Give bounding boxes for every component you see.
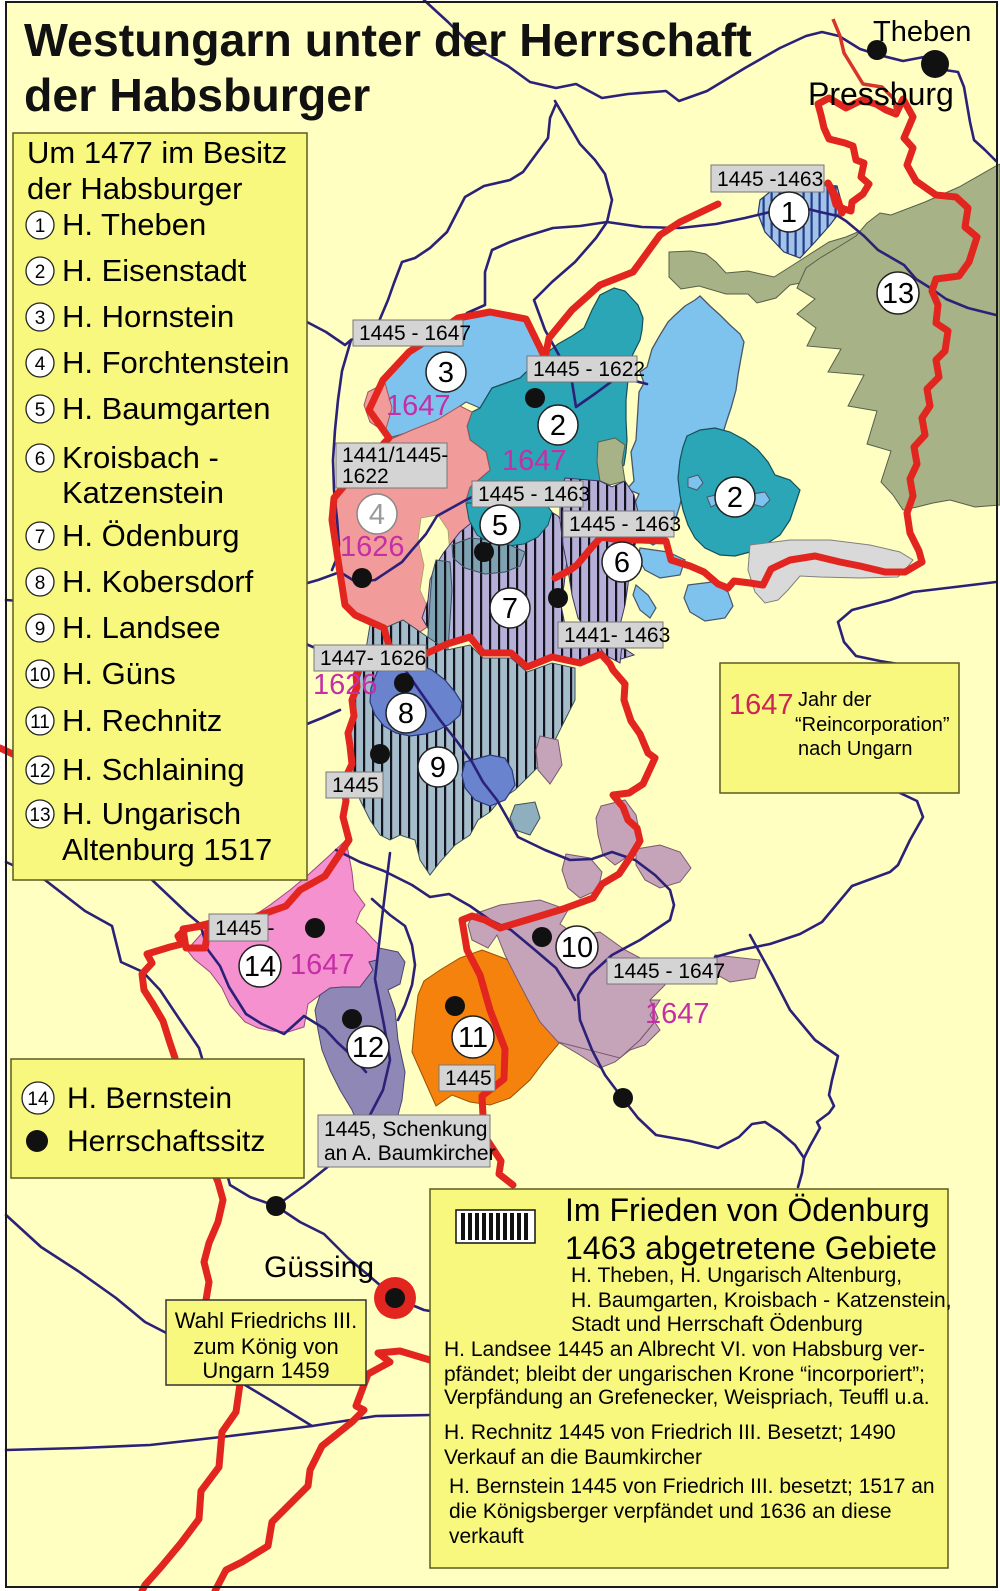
svg-text:12: 12 [352,1032,384,1064]
svg-text:Jahr der: Jahr der [798,689,872,711]
svg-text:1445 - 1463: 1445 - 1463 [569,513,681,536]
svg-text:1445 - 1647: 1445 - 1647 [613,960,725,983]
svg-text:H. Forchtenstein: H. Forchtenstein [62,345,289,380]
svg-text:11: 11 [458,1022,488,1054]
svg-text:1445 -1463: 1445 -1463 [717,168,823,191]
svg-text:Herrschaftssitz: Herrschaftssitz [67,1125,265,1158]
svg-text:8: 8 [398,698,414,730]
svg-text:die Königsberger verpfändet un: die Königsberger verpfändet und 1636 an … [449,1500,892,1523]
svg-text:Pressburg: Pressburg [808,76,954,112]
svg-text:2: 2 [35,262,46,283]
svg-text:1: 1 [781,197,797,229]
svg-text:1647: 1647 [645,998,710,1030]
svg-text:Stadt und Herrschaft Ödenburg: Stadt und Herrschaft Ödenburg [571,1313,863,1336]
svg-text:H. Theben: H. Theben [62,207,206,242]
svg-text:13: 13 [882,278,914,310]
svg-text:12: 12 [29,761,50,782]
svg-text:H. Schlaining: H. Schlaining [62,752,245,787]
svg-text:2: 2 [727,482,743,514]
svg-text:H. Hornstein: H. Hornstein [62,299,234,334]
svg-text:1626: 1626 [313,669,378,701]
svg-text:2: 2 [550,410,566,442]
svg-text:H. Rechnitz: H. Rechnitz [62,703,222,738]
svg-text:1445: 1445 [332,774,379,797]
svg-text:9: 9 [35,619,46,640]
svg-text:1445 - 1647: 1445 - 1647 [359,322,471,345]
svg-text:1447- 1626: 1447- 1626 [320,647,426,670]
svg-text:5: 5 [35,400,46,421]
svg-text:1647: 1647 [502,445,567,477]
svg-text:7: 7 [35,527,46,548]
svg-text:13: 13 [29,805,50,826]
svg-text:10: 10 [561,932,593,964]
svg-text:4: 4 [35,354,46,375]
svg-text:an A. Baumkircher: an A. Baumkircher [324,1142,496,1165]
svg-text:Altenburg 1517: Altenburg 1517 [62,832,272,867]
svg-text:1463 abgetretene Gebiete: 1463 abgetretene Gebiete [565,1230,937,1266]
svg-text:1647: 1647 [729,689,794,721]
svg-text:Verpfändung an Grefenecker, We: Verpfändung an Grefenecker, Weispriach, … [444,1386,930,1409]
svg-text:Katzenstein: Katzenstein [62,475,224,510]
svg-text:H. Ungarisch: H. Ungarisch [62,796,241,831]
svg-text:1445 - 1622: 1445 - 1622 [533,358,645,381]
svg-text:Theben: Theben [873,16,971,48]
svg-text:nach Ungarn: nach Ungarn [798,738,913,760]
svg-text:H. Landsee: H. Landsee [62,610,221,645]
svg-text:8: 8 [35,573,46,594]
svg-text:H. Rechnitz 1445 von Friedrich: H. Rechnitz 1445 von Friedrich III. Bese… [444,1421,896,1444]
svg-text:Westungarn unter der Herrschaf: Westungarn unter der Herrschaft [24,14,752,66]
svg-text:1441/1445-: 1441/1445- [342,444,448,467]
svg-text:11: 11 [30,712,50,733]
svg-text:5: 5 [492,510,508,542]
svg-text:1: 1 [35,216,46,237]
svg-text:H. Güns: H. Güns [62,656,176,691]
svg-text:1441- 1463: 1441- 1463 [564,624,670,647]
svg-text:4: 4 [369,499,385,531]
svg-text:H. Eisenstadt: H. Eisenstadt [62,253,247,288]
svg-text:zum König von: zum König von [193,1334,339,1359]
svg-text:Um 1477 im Besitz: Um 1477 im Besitz [27,135,287,170]
svg-text:der Habsburger: der Habsburger [24,69,370,121]
svg-text:1445: 1445 [445,1067,492,1090]
svg-text:3: 3 [438,357,454,389]
svg-text:9: 9 [430,752,446,784]
svg-text:verkauft: verkauft [449,1525,524,1548]
svg-text:14: 14 [244,951,276,983]
svg-text:3: 3 [35,308,46,329]
svg-text:“Reincorporation”: “Reincorporation” [795,714,950,736]
svg-text:1622: 1622 [342,465,389,488]
svg-text:pfändet; bleibt der ungarische: pfändet; bleibt der ungarischen Krone “i… [444,1363,925,1386]
svg-text:1445 -: 1445 - [215,917,275,940]
svg-text:H. Kobersdorf: H. Kobersdorf [62,564,254,599]
svg-text:H. Bernstein 1445 von Friedric: H. Bernstein 1445 von Friedrich III. bes… [449,1475,935,1498]
svg-text:H. Baumgarten, Kroisbach - Kat: H. Baumgarten, Kroisbach - Katzenstein, [571,1289,952,1312]
svg-text:Güssing: Güssing [264,1251,374,1284]
svg-text:Verkauf an die Baumkircher: Verkauf an die Baumkircher [444,1446,702,1469]
svg-text:1445 - 1463: 1445 - 1463 [478,483,590,506]
svg-text:H. Ödenburg: H. Ödenburg [62,518,240,553]
svg-text:10: 10 [29,665,50,686]
svg-text:der Habsburger: der Habsburger [27,171,242,206]
svg-text:1647: 1647 [290,949,355,981]
svg-text:H. Theben, H. Ungarisch Altenb: H. Theben, H. Ungarisch Altenburg, [571,1264,902,1287]
svg-text:1445, Schenkung: 1445, Schenkung [324,1118,487,1141]
svg-text:1626: 1626 [340,531,405,563]
svg-text:Kroisbach -: Kroisbach - [62,440,219,475]
svg-text:H. Baumgarten: H. Baumgarten [62,391,271,426]
svg-text:6: 6 [614,547,630,579]
svg-text:H. Landsee 1445 an Albrecht VI: H. Landsee 1445 an Albrecht VI. von Habs… [444,1338,925,1361]
svg-text:Ungarn 1459: Ungarn 1459 [202,1358,329,1383]
svg-text:14: 14 [27,1089,49,1110]
svg-text:6: 6 [35,449,46,470]
svg-text:7: 7 [502,593,518,625]
svg-text:H. Bernstein: H. Bernstein [67,1082,232,1115]
svg-text:Wahl Friedrichs III.: Wahl Friedrichs III. [175,1308,358,1333]
svg-text:1647: 1647 [386,390,451,422]
svg-text:Im Frieden von Ödenburg: Im Frieden von Ödenburg [565,1192,930,1228]
